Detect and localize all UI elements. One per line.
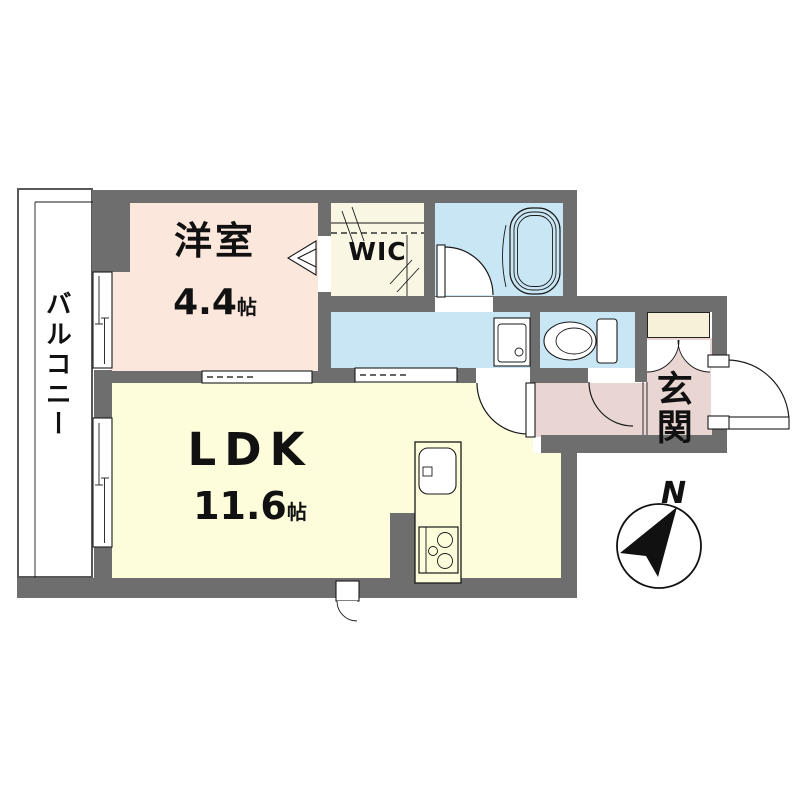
bedroom-size-value: 4.4 [173,282,237,323]
ldk-size: 11.6帖 [145,487,355,527]
ldk-size-value: 11.6 [193,484,287,528]
entrance-door [708,355,789,429]
entrance-label: 玄関 [652,370,690,460]
bedroom-window [93,272,112,368]
ldk-size-unit: 帖 [287,500,307,524]
compass: N [617,476,701,588]
toilet-door-arc [589,382,633,426]
kitchen-sink [419,448,456,494]
shoe-cabinet-doors [647,340,710,372]
ldk-window [93,418,112,547]
washbasin [494,318,530,366]
bathtub [503,208,561,294]
hallway-door [477,383,535,437]
floorplan: N 洋室 4.4帖 LDK 11.6帖 WIC 玄関 バルコニー [0,0,800,800]
bedroom-sliding-door [202,371,312,383]
ldk-label: LDK [155,426,345,473]
bedroom-size-unit: 帖 [237,295,257,319]
bedroom-size: 4.4帖 [120,284,310,322]
bath-door [437,245,493,297]
compass-north-label: N [661,476,686,511]
entrance-step-line [643,382,647,435]
kitchen-counter [415,442,461,583]
balcony-label: バルコニー [42,290,69,510]
toilet [544,319,617,363]
wic-label: WIC [331,239,424,265]
ldk-south-door [336,581,359,621]
bedroom-label: 洋室 [120,222,310,262]
washroom-sliding-door [355,368,457,382]
